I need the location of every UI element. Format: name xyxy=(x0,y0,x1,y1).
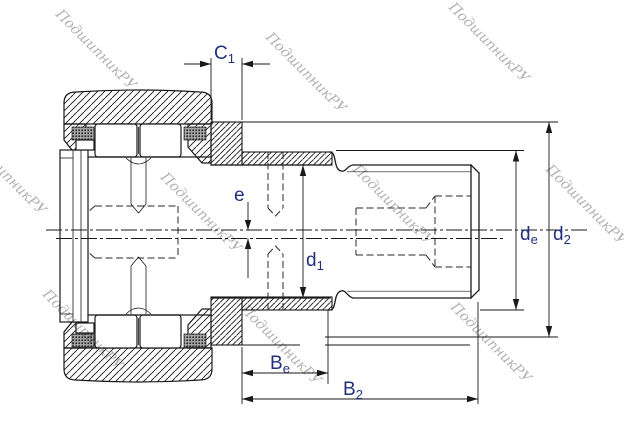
outer-ring-top-section xyxy=(64,90,212,124)
centerlines xyxy=(46,230,588,239)
thread-chamfer-diag-top xyxy=(471,165,479,173)
watermark-text: ПодшипникРУ xyxy=(261,29,349,117)
grease-hole-collar-top-cone xyxy=(268,208,283,216)
b2-arrow-left xyxy=(242,396,253,402)
c1-arrow-right xyxy=(242,61,253,67)
grease-hole-collar-bottom-cone xyxy=(268,246,283,254)
c1-label: C1 xyxy=(214,43,235,66)
undercut-groove-bottom xyxy=(330,291,470,310)
d2-arrow-up xyxy=(546,122,552,133)
grease-hole-left-top-mouth xyxy=(126,158,151,164)
watermark-text: ПодшипникРУ xyxy=(348,161,436,249)
d2-label: d2 xyxy=(553,224,571,247)
grease-holes xyxy=(126,152,283,314)
socket-left-chamfer-top xyxy=(88,206,95,212)
d1-arrow-up xyxy=(300,165,306,176)
cam-follower-section-drawing: C1 e d1 de d2 Be xyxy=(0,0,624,444)
seal-lip-top-left xyxy=(76,140,94,150)
d1-label: d1 xyxy=(306,250,324,273)
eccentric-collar xyxy=(242,152,332,310)
seal-top-right xyxy=(184,127,206,140)
dimension-d1: d1 xyxy=(300,165,324,298)
flange-top-section xyxy=(211,122,242,165)
watermark-text: ПодшипникРУ xyxy=(444,0,532,87)
b2-arrow-right xyxy=(467,396,478,402)
watermark-text: ПодшипникРУ xyxy=(446,299,534,387)
socket-left-chamfer-bottom xyxy=(88,252,95,258)
bearing-drawing-page: C1 e d1 de d2 Be xyxy=(0,0,624,444)
thread-chamfer-diag-bottom xyxy=(471,290,479,298)
d2-arrow-down xyxy=(546,326,552,337)
dimension-e: e xyxy=(234,185,251,278)
needle-bottom-2 xyxy=(140,315,181,348)
seal-top-left xyxy=(72,127,94,140)
grease-hole-left-top-cone xyxy=(131,204,146,213)
grease-hole-left-bottom-mouth xyxy=(126,308,151,314)
b2-label: B2 xyxy=(343,379,363,402)
de-arrow-down xyxy=(513,299,519,310)
needle-top-2 xyxy=(140,124,181,157)
e-label: e xyxy=(234,185,245,206)
watermark-text: ПодшипникРУ xyxy=(0,131,50,219)
end-washer xyxy=(60,150,88,322)
d1-arrow-down xyxy=(300,287,306,298)
e-arrow-up xyxy=(245,239,251,250)
c1-arrow-left xyxy=(200,61,211,67)
e-arrow-down xyxy=(245,220,251,230)
de-label: de xyxy=(520,224,538,247)
watermark-text: ПодшипникРУ xyxy=(156,169,244,257)
collar-top-section xyxy=(242,152,332,165)
be-arrow-left xyxy=(242,370,253,376)
seal-bottom-right xyxy=(184,334,206,347)
seals xyxy=(72,127,206,347)
needle-top-1 xyxy=(95,124,137,157)
socket-right-chamfer-bottom xyxy=(426,255,435,267)
outer-ring-bottom-section xyxy=(64,348,212,382)
watermarks: ПодшипникРУ ПодшипникРУ ПодшипникРУ Подш… xyxy=(0,0,624,389)
socket-right-chamfer-top xyxy=(426,196,435,208)
watermark-text: ПодшипникРУ xyxy=(51,6,139,94)
de-arrow-up xyxy=(513,151,519,162)
undercut-groove-top xyxy=(330,152,470,171)
flange-bottom-section xyxy=(211,297,242,345)
end-washer-body xyxy=(60,150,88,322)
